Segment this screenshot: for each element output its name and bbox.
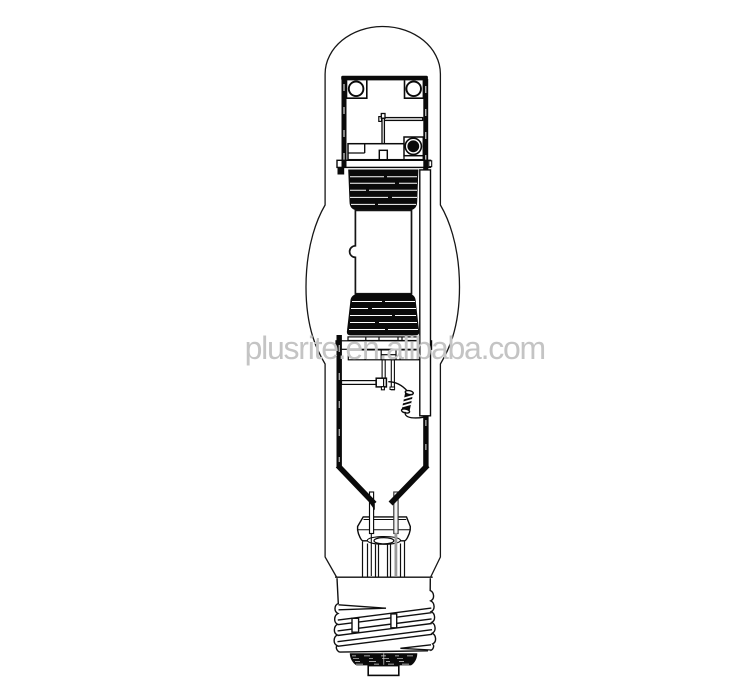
svg-text:plusrite.en.alibaba.com: plusrite.en.alibaba.com <box>245 330 545 366</box>
